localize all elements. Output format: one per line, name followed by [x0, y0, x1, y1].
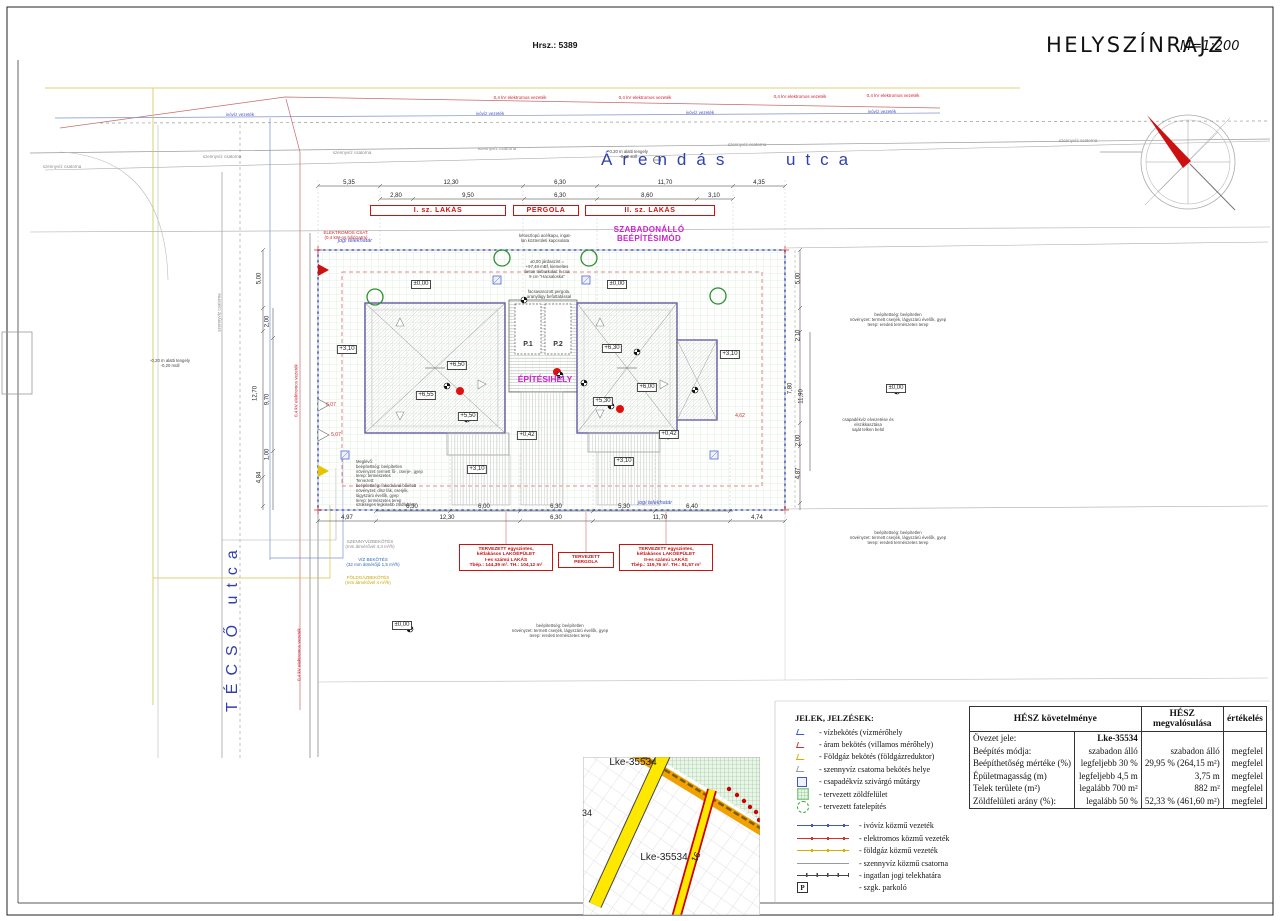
hesz-table-body: Övezet jele:Lke-35534Beépítés módja:szab…: [970, 732, 1267, 809]
legend-label: - földgáz közmű vezeték: [859, 846, 938, 855]
plan-label: 5,35: [343, 180, 355, 187]
legend-item: P- szgk. parkoló: [795, 882, 973, 894]
plan-label: 11,70: [658, 180, 673, 187]
plan-label: szennyvíz csatorna: [43, 164, 82, 169]
hesz-cell: megfelel: [1223, 782, 1266, 795]
plan-label: TERVEZETT PERGOLA: [558, 552, 614, 568]
plan-label: 2,00: [265, 316, 272, 328]
plan-label: +6,50: [447, 361, 467, 370]
hesz-header-realization: HÉSZ megvalósulása: [1141, 707, 1223, 732]
plan-label: 1,00: [265, 449, 272, 461]
plan-label: 0,4 kV elektromos vezeték: [774, 94, 827, 99]
plan-label: 2,00: [796, 435, 803, 447]
hesz-cell: 29,95 % (264,15 m²): [1141, 757, 1223, 770]
legend-label: - elektromos közmű vezeték: [859, 834, 949, 843]
plan-label: Lke-35534: [640, 852, 687, 864]
hesz-cell: legalább 50 %: [1074, 795, 1141, 808]
hesz-row: Övezet jele:Lke-35534: [970, 732, 1267, 745]
plan-label: csapadékvíz elvezetése és elszikkasztása…: [842, 418, 893, 433]
green-icon: [797, 788, 809, 800]
plan-label: beépítettség: beépítetlen növényzet: ter…: [850, 531, 946, 546]
plan-label: +0,42: [517, 431, 537, 440]
gas-icon: [796, 754, 806, 760]
plan-label: P.1: [523, 341, 533, 349]
plan-label: 3,10: [708, 193, 720, 200]
plan-label: 5,00: [796, 273, 803, 285]
plan-label: jogi telekhatár: [638, 500, 672, 506]
plan-label: SZABADONÁLLÓ BEÉPÍTÉSIMÓD: [614, 225, 685, 243]
plan-label: FÖLDGÁZBEKÖTÉS (mm átmérővel 4 m³/h): [345, 575, 391, 585]
hesz-header-requirement: HÉSZ követelménye: [970, 707, 1142, 732]
legend-item: - csapadékvíz szivárgó műtárgy: [795, 776, 973, 788]
plan-label: TERVEZETT egyszintes, kétlakásos LAKÓÉPÜ…: [459, 544, 553, 571]
hesz-cell: Beépíthetőség mértéke (%): [970, 757, 1075, 770]
plan-label: 6,30: [554, 180, 566, 187]
line-sewer-icon: [797, 863, 849, 864]
legend-label: - szgk. parkoló: [859, 883, 907, 892]
plan-label: 9,50: [462, 193, 474, 200]
hesz-cell: Zöldfelületi arány (%):: [970, 795, 1075, 808]
plan-label: jogi telekhatár: [338, 238, 372, 244]
plan-label: ivóvíz vezeték: [686, 110, 714, 115]
plan-label: ELEKTROMOS CSAT. (0,4 kW-os hálózatra): [324, 230, 369, 240]
hesz-cell: megfelel: [1223, 745, 1266, 758]
legend-label: - tervezett zöldfelület: [819, 790, 887, 799]
legend-label: - Földgáz bekötés (földgázreduktor): [819, 752, 934, 761]
line-gas-icon: [797, 849, 849, 852]
plan-label: +6,30: [602, 344, 622, 353]
hesz-cell: [1141, 732, 1223, 745]
plan-label: 0,4 kV elektromos vezeték: [494, 95, 547, 100]
plan-label: szennyvíz csatorna: [478, 146, 517, 151]
legend-item: - vízbekötés (vízmérőhely: [795, 726, 973, 738]
plan-label: -0,20 m alatti tengely -0,20 süll: [608, 150, 648, 160]
plan-label: 6,30: [550, 504, 562, 511]
plan-label: ÉPÍTÉSIHELY: [518, 375, 572, 385]
plan-label: ivóvíz vezeték: [226, 112, 254, 117]
legend-label: - ingatlan jogi telekhatára: [859, 871, 941, 880]
rain-icon: [797, 777, 807, 787]
plan-label: Meglévő: beépítettség: beépítetlen növén…: [356, 460, 423, 508]
plan-label: -0,20 m alatti tengely -0,20 müll: [150, 359, 190, 369]
legend-item: - elektromos közmű vezeték: [795, 832, 973, 844]
plan-label: beépítettség: beépítetlen növényzet: ter…: [850, 313, 946, 328]
plan-label: 34: [582, 808, 592, 818]
hesz-cell: [1223, 732, 1266, 745]
hesz-row: Telek területe (m²)legalább 700 m²882 m²…: [970, 782, 1267, 795]
plan-label: 0,4 kV elektromos vezeték: [293, 364, 298, 417]
plan-label: ivóvíz vezeték: [476, 111, 504, 116]
plan-label: 4,84: [257, 472, 264, 484]
plan-label: 7,80: [788, 383, 795, 395]
hesz-row: Beépíthetőség mértéke (%)legfeljebb 30 %…: [970, 757, 1267, 770]
sewer-icon: [796, 766, 806, 772]
hesz-cell: 882 m²: [1141, 782, 1223, 795]
plan-label: 8,60: [641, 193, 653, 200]
legend-label: - vízbekötés (vízmérőhely: [819, 728, 903, 737]
plan-label: 6,30: [554, 193, 566, 200]
plan-label: +6,55: [416, 391, 436, 400]
plan-label: 16: [689, 850, 703, 864]
hesz-cell: legfeljebb 4,5 m: [1074, 770, 1141, 783]
electric-icon: [796, 742, 806, 748]
plan-label: kétoszlopú acélkapu, ingat- lan közterül…: [519, 234, 571, 244]
plan-label: +5,50: [458, 412, 478, 421]
legend-item: - áram bekötés (villamos mérőhely): [795, 738, 973, 750]
plan-label: ±0,00: [886, 384, 906, 393]
hesz-cell: Beépítés módja:: [970, 745, 1075, 758]
plan-label: 11,70: [653, 515, 668, 522]
plan-label: ±0,00: [411, 280, 431, 289]
hesz-row: Épületmagasság (m)legfeljebb 4,5 m3,75 m…: [970, 770, 1267, 783]
plan-label: 6,40: [686, 504, 698, 511]
plan-label: 0,4 kV elektromos vezeték: [296, 628, 301, 681]
plan-label: 6,30: [550, 515, 562, 522]
line-boundary-icon: [797, 873, 849, 877]
plan-label: szennyvíz csatorna: [1059, 138, 1098, 143]
plan-label: 6,07: [326, 403, 336, 409]
plan-label: 9,70: [265, 394, 272, 406]
legend-symbol-list: - vízbekötés (vízmérőhely- áram bekötés …: [795, 726, 973, 813]
line-electric-icon: [797, 837, 849, 840]
plan-label: 0,4 kV elektromos vezeték: [619, 95, 672, 100]
hesz-row: Beépítés módja:szabadon állószabadon áll…: [970, 745, 1267, 758]
tree-icon: [797, 801, 809, 813]
plan-label: szennyvíz csatorna: [728, 142, 767, 147]
plan-label: ivóvíz vezeték: [868, 109, 896, 114]
plan-label: 4,62: [735, 414, 745, 420]
plan-label: 12,70: [253, 386, 260, 401]
plan-label: 5,07: [331, 433, 341, 439]
legend-label: - tervezett fatelepítés: [819, 802, 886, 811]
plan-label: 6,30: [406, 504, 418, 511]
plan-label: 4,74: [751, 515, 763, 522]
plan-label: SZENNYVÍZBEKÖTÉS (mm átmérővel 4,3 m³/h): [345, 539, 394, 549]
legend-item: - ingatlan jogi telekhatára: [795, 869, 973, 881]
water-icon: [796, 729, 806, 735]
legend-item: - Földgáz bekötés (földgázreduktor): [795, 751, 973, 763]
legend-line-list: - ivóvíz közmű vezeték- elektromos közmű…: [795, 820, 973, 894]
plan-label: 2,10: [796, 330, 803, 342]
plan-label: 6,00: [478, 504, 490, 511]
parking-icon: P: [797, 882, 808, 893]
hesz-cell: megfelel: [1223, 770, 1266, 783]
legend-item: - ivóvíz közmű vezeték: [795, 820, 973, 832]
plan-label: 12,30: [443, 180, 458, 187]
hesz-cell: megfelel: [1223, 757, 1266, 770]
hesz-cell: megfelel: [1223, 795, 1266, 808]
hesz-cell: 52,33 % (461,60 m²): [1141, 795, 1223, 808]
line-water-icon: [797, 824, 849, 827]
legend: JELEK, JELZÉSEK: - vízbekötés (vízmérőhe…: [795, 713, 973, 894]
legend-item: - földgáz közmű vezeték: [795, 845, 973, 857]
plan-label: 12,30: [439, 515, 454, 522]
plan-label: 4,87: [796, 468, 803, 480]
plan-label: +3,10: [337, 345, 357, 354]
legend-label: - áram bekötés (villamos mérőhely): [819, 740, 933, 749]
plan-label: PERGOLA: [513, 205, 579, 216]
legend-item: - tervezett zöldfelület: [795, 788, 973, 800]
plan-label: +0,42: [659, 430, 679, 439]
hesz-table: HÉSZ követelménye HÉSZ megvalósulása ért…: [969, 706, 1267, 809]
plan-label: +3,10: [720, 350, 740, 359]
legend-label: - szennyvíz közmű csatorna: [859, 859, 948, 868]
plan-label: ±0,00: [607, 280, 627, 289]
hesz-cell: szabadon álló: [1074, 745, 1141, 758]
legend-item: - szennyvíz közmű csatorna: [795, 857, 973, 869]
plan-label: szennyvíz csatorna: [203, 154, 242, 159]
legend-label: - szennyvíz csatorna bekötés helye: [819, 765, 930, 774]
plan-label: 11,90: [799, 389, 806, 404]
plan-label: 2,80: [390, 193, 402, 200]
plan-label: I. sz. LAKÁS: [370, 205, 506, 216]
site-plan-sheet: Hrsz.: 5389 HELYSZÍNRAJZ M=1:200 Árendás…: [0, 0, 1280, 921]
plan-label: +3,10: [614, 457, 634, 466]
hesz-cell: szabadon álló: [1141, 745, 1223, 758]
hesz-row: Zöldfelületi arány (%):legalább 50 %52,3…: [970, 795, 1267, 808]
plan-label: TERVEZETT egyszintes, kétlakásos LAKÓÉPÜ…: [619, 544, 713, 571]
plan-label: 4,35: [753, 180, 765, 187]
plan-label: +5,30: [593, 397, 613, 406]
plan-label: 5,00: [257, 273, 264, 285]
plan-label: beépítettség: beépítetlen növényzet: ter…: [512, 624, 608, 639]
hesz-cell: Lke-35534: [1074, 732, 1141, 745]
legend-item: - szennyvíz csatorna bekötés helye: [795, 763, 973, 775]
plan-label: P.2: [553, 341, 563, 349]
legend-item: - tervezett fatelepítés: [795, 800, 973, 812]
hesz-cell: Épületmagasság (m): [970, 770, 1075, 783]
plan-label: ±0,00 járdaszint = +97,48 mBf, kiemeltes…: [525, 260, 570, 280]
hesz-cell: legalább 700 m²: [1074, 782, 1141, 795]
hesz-cell: 3,75 m: [1141, 770, 1223, 783]
hesz-cell: legfeljebb 30 %: [1074, 757, 1141, 770]
plan-label: szennyvíz csatorna: [216, 293, 221, 332]
legend-label: - csapadékvíz szivárgó műtárgy: [819, 777, 920, 786]
plan-label: +6,00: [637, 383, 657, 392]
plan-label: facsavarozott pergola, aranylágy befutta…: [527, 290, 571, 300]
plan-label: 0,4 kV elektromos vezeték: [867, 93, 920, 98]
plan-label: +3,10: [467, 465, 487, 474]
plan-label: szennyvíz csatorna: [333, 150, 372, 155]
plan-label: ±0,00: [392, 621, 412, 630]
plan-label: Lke-35534: [609, 757, 656, 769]
hesz-cell: Övezet jele:: [970, 732, 1075, 745]
plan-label: 4,97: [341, 515, 353, 522]
legend-title: JELEK, JELZÉSEK:: [795, 713, 973, 723]
plan-label: VÍZ BEKÖTÉS (32 mm átmérőjű 1,5 m³/h): [346, 557, 399, 567]
plan-label: 5,30: [618, 504, 630, 511]
legend-label: - ivóvíz közmű vezeték: [859, 821, 934, 830]
hesz-cell: Telek területe (m²): [970, 782, 1075, 795]
hesz-header-evaluation: értékelés: [1223, 707, 1266, 732]
plan-label: II. sz. LAKÁS: [585, 205, 715, 216]
